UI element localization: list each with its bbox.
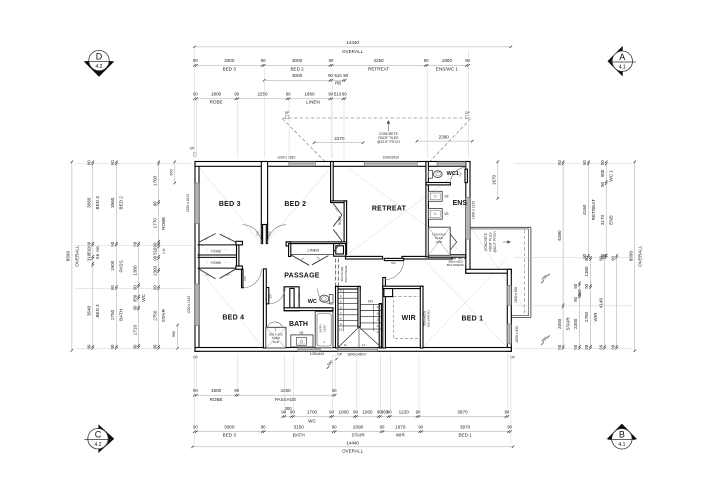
- svg-text:RB: RB: [95, 253, 100, 259]
- svg-text:VB: VB: [444, 212, 448, 216]
- svg-text:8590: 8590: [628, 251, 633, 262]
- svg-text:90: 90: [110, 285, 115, 290]
- svg-text:2750: 2750: [152, 310, 157, 321]
- svg-text:1200 x 1810: 1200 x 1810: [186, 194, 190, 212]
- svg-text:360: 360: [577, 289, 582, 297]
- svg-text:3000: 3000: [224, 424, 235, 429]
- svg-text:1710: 1710: [132, 325, 137, 336]
- svg-text:10: 10: [339, 327, 343, 331]
- svg-text:90: 90: [342, 92, 347, 97]
- svg-text:3970: 3970: [460, 424, 471, 429]
- svg-text:90: 90: [416, 409, 421, 414]
- svg-text:90: 90: [380, 424, 385, 429]
- svg-text:1800 x 1810: 1800 x 1810: [472, 201, 476, 219]
- svg-text:B: B: [619, 430, 625, 440]
- svg-text:WC1: WC1: [447, 171, 459, 177]
- svg-text:1800 x 850: 1800 x 850: [514, 287, 518, 303]
- svg-text:90: 90: [584, 256, 589, 261]
- svg-text:BATH: BATH: [289, 321, 308, 328]
- svg-text:90: 90: [557, 344, 562, 349]
- svg-text:90: 90: [610, 344, 615, 349]
- svg-text:90: 90: [152, 201, 157, 206]
- svg-text:DP: DP: [285, 111, 290, 115]
- svg-text:ENS/WC 1: ENS/WC 1: [436, 66, 459, 71]
- svg-text:90: 90: [152, 285, 157, 290]
- svg-text:90: 90: [329, 58, 334, 63]
- svg-text:90: 90: [152, 255, 157, 260]
- svg-text:4250: 4250: [373, 58, 384, 63]
- svg-text:WC: WC: [308, 299, 317, 305]
- svg-text:1770: 1770: [152, 218, 157, 229]
- svg-text:3150: 3150: [294, 424, 305, 429]
- svg-text:VB: VB: [299, 331, 303, 335]
- svg-text:1300: 1300: [152, 265, 157, 276]
- svg-text:720: 720: [459, 172, 463, 177]
- svg-text:BULKHEAD: BULKHEAD: [344, 265, 348, 282]
- svg-text:14440: 14440: [346, 440, 359, 445]
- svg-text:4160: 4160: [582, 204, 587, 215]
- svg-text:DP: DP: [510, 356, 515, 360]
- svg-text:950: 950: [172, 331, 176, 337]
- svg-text:1220: 1220: [399, 409, 410, 414]
- svg-text:2250: 2250: [257, 92, 268, 97]
- svg-text:4.2: 4.2: [96, 64, 103, 70]
- svg-text:90: 90: [110, 160, 115, 165]
- svg-text:WC: WC: [308, 418, 316, 423]
- svg-text:BULKHEAD: BULKHEAD: [427, 310, 431, 327]
- svg-text:4.1: 4.1: [618, 442, 625, 448]
- svg-text:OVERALL: OVERALL: [638, 245, 643, 267]
- svg-text:BED 2: BED 2: [119, 196, 124, 210]
- svg-text:RB: RB: [95, 246, 100, 252]
- svg-text:WIR: WIR: [593, 312, 598, 322]
- svg-text:ROOF TILES: ROOF TILES: [488, 233, 492, 252]
- svg-text:RETREAT: RETREAT: [591, 199, 596, 220]
- svg-text:OVERALL: OVERALL: [342, 449, 364, 454]
- svg-text:16: 16: [376, 311, 380, 315]
- svg-text:PASSAGE: PASSAGE: [275, 397, 297, 402]
- svg-text:90: 90: [584, 283, 589, 288]
- svg-text:DP: DP: [190, 147, 195, 151]
- svg-text:1300: 1300: [584, 266, 589, 277]
- svg-text:1800x1450 F.: 1800x1450 F.: [347, 353, 367, 357]
- svg-text:720: 720: [297, 293, 301, 298]
- svg-text:510: 510: [86, 247, 91, 255]
- svg-text:ENS: ENS: [609, 215, 614, 224]
- svg-text:90: 90: [152, 242, 157, 247]
- svg-text:820: 820: [268, 293, 272, 298]
- svg-text:ROBE: ROBE: [338, 216, 342, 225]
- svg-text:LN: LN: [161, 248, 166, 253]
- svg-text:BED 1: BED 1: [461, 316, 483, 323]
- svg-text:90: 90: [353, 409, 358, 414]
- svg-text:BED 1: BED 1: [458, 433, 472, 438]
- svg-text:BULKHEAD: BULKHEAD: [447, 263, 464, 267]
- svg-text:LINEN: LINEN: [308, 247, 320, 252]
- svg-text:RETREAT: RETREAT: [368, 66, 389, 71]
- svg-text:820: 820: [391, 261, 396, 265]
- svg-text:BED 2: BED 2: [284, 201, 306, 208]
- svg-text:WC 1: WC 1: [609, 170, 614, 182]
- svg-text:RETREAT: RETREAT: [372, 206, 407, 213]
- svg-text:PASSAGE: PASSAGE: [284, 273, 320, 280]
- svg-text:2750: 2750: [584, 311, 589, 322]
- svg-text:1900: 1900: [110, 260, 115, 271]
- svg-text:90: 90: [286, 92, 291, 97]
- svg-text:1030x610: 1030x610: [310, 352, 325, 356]
- svg-text:3560: 3560: [110, 197, 115, 208]
- svg-text:SHR: SHR: [436, 240, 443, 244]
- svg-text:4350: 4350: [280, 388, 291, 393]
- svg-text:3970: 3970: [457, 409, 468, 414]
- svg-text:OVERALL: OVERALL: [342, 49, 364, 54]
- svg-text:2390: 2390: [439, 135, 450, 140]
- svg-text:90: 90: [600, 160, 605, 165]
- svg-text:STAIR: STAIR: [565, 317, 570, 331]
- svg-text:SHR: SHR: [273, 340, 280, 344]
- svg-text:820: 820: [255, 231, 259, 236]
- svg-text:950: 950: [169, 169, 173, 175]
- svg-text:8590: 8590: [65, 251, 70, 262]
- svg-text:3000: 3000: [292, 73, 303, 78]
- svg-text:+: +: [323, 341, 325, 345]
- svg-text:2000: 2000: [557, 318, 562, 329]
- svg-text:90: 90: [132, 285, 137, 290]
- svg-text:OVERALL: OVERALL: [75, 245, 80, 267]
- svg-text:1000: 1000: [338, 409, 349, 414]
- svg-text:ROBE: ROBE: [210, 397, 223, 402]
- svg-text:3540: 3540: [86, 305, 91, 316]
- svg-text:510: 510: [152, 247, 157, 255]
- svg-text:1525: 1525: [323, 325, 327, 332]
- svg-text:1200 x 1810: 1200 x 1810: [187, 296, 191, 314]
- svg-text:BED 2: BED 2: [290, 66, 304, 71]
- svg-text:6390: 6390: [557, 230, 562, 241]
- svg-text:90: 90: [261, 424, 266, 429]
- svg-text:1030x2410: 1030x2410: [383, 155, 399, 159]
- svg-text:BED 3: BED 3: [223, 66, 237, 71]
- svg-text:D: D: [96, 51, 103, 61]
- svg-text:WIR: WIR: [402, 315, 416, 322]
- svg-text:90: 90: [573, 297, 578, 302]
- svg-text:820: 820: [243, 276, 247, 281]
- svg-text:A: A: [619, 52, 625, 62]
- svg-text:13: 13: [376, 330, 380, 334]
- svg-text:360: 360: [381, 409, 389, 414]
- svg-text:@22.5° PITCH: @22.5° PITCH: [377, 140, 400, 144]
- svg-text:90: 90: [332, 424, 337, 429]
- svg-text:STAIR: STAIR: [161, 308, 166, 322]
- svg-text:300: 300: [285, 406, 293, 411]
- svg-text:90: 90: [193, 58, 198, 63]
- svg-text:510: 510: [334, 92, 342, 97]
- svg-text:900: 900: [600, 169, 605, 177]
- svg-text:90: 90: [573, 344, 578, 349]
- svg-text:DN: DN: [368, 300, 373, 304]
- svg-text:90: 90: [584, 344, 589, 349]
- svg-text:12: 12: [362, 343, 366, 347]
- svg-text:15: 15: [376, 318, 380, 322]
- svg-text:ENS: ENS: [453, 200, 468, 207]
- svg-text:1860: 1860: [304, 92, 315, 97]
- svg-text:1800: 1800: [442, 58, 453, 63]
- svg-text:4140: 4140: [598, 297, 603, 308]
- svg-text:90: 90: [234, 92, 239, 97]
- svg-text:1800: 1800: [211, 92, 222, 97]
- svg-text:3560: 3560: [86, 197, 91, 208]
- svg-text:90: 90: [424, 58, 429, 63]
- svg-text:LINEN: LINEN: [306, 100, 320, 105]
- svg-text:17: 17: [376, 305, 380, 309]
- svg-text:WC: WC: [141, 293, 146, 301]
- svg-text:VB: VB: [444, 194, 448, 198]
- svg-text:90: 90: [465, 58, 470, 63]
- svg-text:PASS.: PASS.: [119, 259, 124, 272]
- svg-text:ROBE: ROBE: [161, 217, 166, 230]
- svg-text:2300: 2300: [573, 318, 578, 329]
- svg-text:@22.5° PITCH: @22.5° PITCH: [493, 231, 497, 253]
- svg-text:1000: 1000: [362, 409, 373, 414]
- svg-text:2750: 2750: [110, 309, 115, 320]
- svg-text:1800 x 850: 1800 x 850: [515, 326, 519, 342]
- svg-text:3000: 3000: [224, 58, 235, 63]
- svg-text:WIR: WIR: [396, 433, 406, 438]
- svg-text:90: 90: [193, 388, 198, 393]
- svg-text:CONCRETE: CONCRETE: [484, 233, 488, 251]
- svg-text:1800: 1800: [211, 388, 222, 393]
- svg-text:90: 90: [598, 344, 603, 349]
- svg-text:90: 90: [234, 388, 239, 393]
- svg-text:4.1: 4.1: [619, 65, 626, 71]
- svg-text:90: 90: [110, 241, 115, 246]
- svg-text:14440: 14440: [346, 40, 359, 45]
- svg-text:14: 14: [376, 324, 380, 328]
- svg-text:90: 90: [132, 241, 137, 246]
- svg-text:ROBE: ROBE: [211, 250, 221, 254]
- svg-text:90: 90: [86, 160, 91, 165]
- svg-text:DP: DP: [193, 356, 198, 360]
- svg-text:1300: 1300: [132, 265, 137, 276]
- svg-text:BED 4: BED 4: [95, 304, 100, 318]
- svg-text:90: 90: [132, 305, 137, 310]
- svg-text:BATH: BATH: [293, 433, 305, 438]
- svg-text:BED 4: BED 4: [222, 314, 244, 321]
- svg-text:90: 90: [328, 73, 333, 78]
- svg-text:BED 3: BED 3: [223, 433, 237, 438]
- svg-text:90: 90: [418, 424, 423, 429]
- svg-text:RB: RB: [335, 81, 341, 86]
- svg-text:90: 90: [261, 58, 266, 63]
- svg-text:C: C: [95, 430, 102, 440]
- svg-text:STAIR: STAIR: [352, 433, 366, 438]
- svg-text:BED 3: BED 3: [95, 196, 100, 210]
- svg-text:1700: 1700: [307, 409, 318, 414]
- svg-text:950: 950: [132, 294, 137, 302]
- svg-text:90: 90: [193, 424, 198, 429]
- svg-text:90: 90: [573, 283, 578, 288]
- svg-text:1200 x 1810: 1200 x 1810: [277, 155, 295, 159]
- svg-text:90: 90: [86, 241, 91, 246]
- svg-text:90: 90: [557, 160, 562, 165]
- svg-text:90: 90: [598, 256, 603, 261]
- svg-text:4.2: 4.2: [95, 442, 102, 448]
- svg-text:90: 90: [600, 182, 605, 187]
- svg-text:90: 90: [610, 256, 615, 261]
- svg-text:90: 90: [505, 409, 510, 414]
- svg-text:90: 90: [343, 73, 348, 78]
- svg-text:3170: 3170: [600, 214, 605, 225]
- svg-text:820: 820: [268, 231, 272, 236]
- svg-text:DP: DP: [465, 111, 470, 115]
- svg-text:90: 90: [193, 92, 198, 97]
- svg-text:2090: 2090: [353, 424, 364, 429]
- svg-text:2270: 2270: [334, 136, 345, 141]
- svg-text:11: 11: [344, 343, 347, 347]
- svg-text:DP: DP: [337, 352, 342, 356]
- svg-text:510: 510: [335, 73, 343, 78]
- svg-text:ROBE: ROBE: [211, 261, 221, 265]
- svg-text:1700: 1700: [152, 175, 157, 186]
- svg-text:90: 90: [329, 409, 334, 414]
- svg-text:BATH: BATH: [119, 309, 124, 321]
- svg-text:BED 3: BED 3: [219, 201, 241, 208]
- svg-text:ROBE: ROBE: [210, 100, 223, 105]
- svg-text:1670: 1670: [491, 174, 496, 185]
- svg-text:3000: 3000: [292, 58, 303, 63]
- svg-text:90: 90: [507, 424, 512, 429]
- svg-text:90: 90: [582, 160, 587, 165]
- svg-text:310: 310: [86, 253, 91, 261]
- svg-text:1670: 1670: [395, 424, 406, 429]
